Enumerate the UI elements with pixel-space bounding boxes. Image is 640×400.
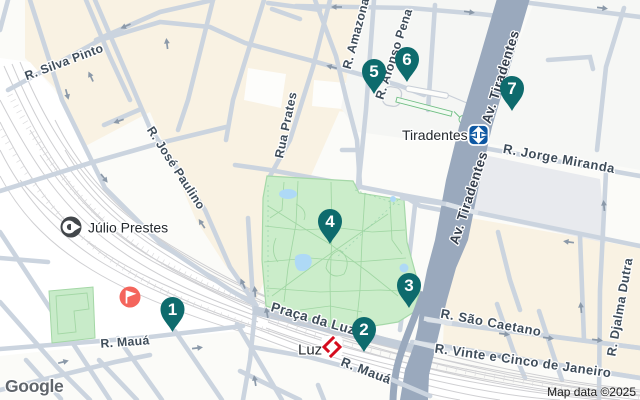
svg-text:Júlio Prestes: Júlio Prestes [88, 220, 168, 236]
svg-text:2: 2 [359, 320, 368, 339]
svg-text:6: 6 [402, 50, 411, 69]
svg-text:7: 7 [507, 79, 516, 98]
svg-text:Tiradentes: Tiradentes [402, 127, 468, 143]
svg-text:5: 5 [369, 62, 378, 81]
svg-text:4: 4 [325, 212, 335, 231]
svg-text:Google: Google [5, 376, 64, 396]
svg-text:Map data ©2025: Map data ©2025 [547, 385, 636, 399]
svg-text:3: 3 [404, 276, 413, 295]
svg-text:1: 1 [168, 300, 177, 319]
svg-text:Luz: Luz [298, 342, 322, 359]
